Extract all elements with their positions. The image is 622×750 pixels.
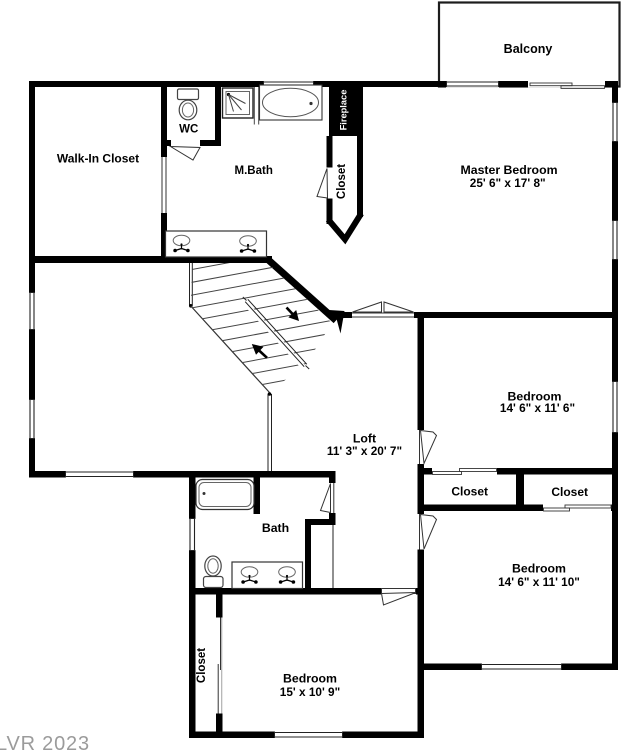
svg-text:Bedroom: Bedroom (512, 562, 566, 576)
svg-text:Walk-In Closet: Walk-In Closet (57, 152, 139, 166)
svg-text:LVR 2023: LVR 2023 (0, 733, 90, 750)
svg-text:Closet: Closet (196, 648, 208, 683)
svg-text:M.Bath: M.Bath (235, 165, 273, 177)
svg-text:Fireplace: Fireplace (339, 90, 349, 131)
svg-text:14' 6" x 11' 10": 14' 6" x 11' 10" (498, 575, 580, 589)
svg-text:14' 6" x 11' 6": 14' 6" x 11' 6" (500, 401, 575, 415)
svg-text:25' 6" x 17' 8": 25' 6" x 17' 8" (470, 176, 546, 190)
svg-text:Closet: Closet (551, 485, 588, 499)
svg-text:Bath: Bath (262, 521, 289, 535)
svg-text:11' 3" x 20' 7": 11' 3" x 20' 7" (327, 444, 402, 458)
svg-text:Closet: Closet (336, 164, 348, 199)
svg-text:WC: WC (179, 123, 198, 135)
svg-text:15' x 10' 9": 15' x 10' 9" (280, 685, 340, 699)
svg-text:Bedroom: Bedroom (283, 671, 337, 685)
svg-text:Closet: Closet (451, 485, 488, 499)
svg-text:Balcony: Balcony (504, 42, 553, 56)
